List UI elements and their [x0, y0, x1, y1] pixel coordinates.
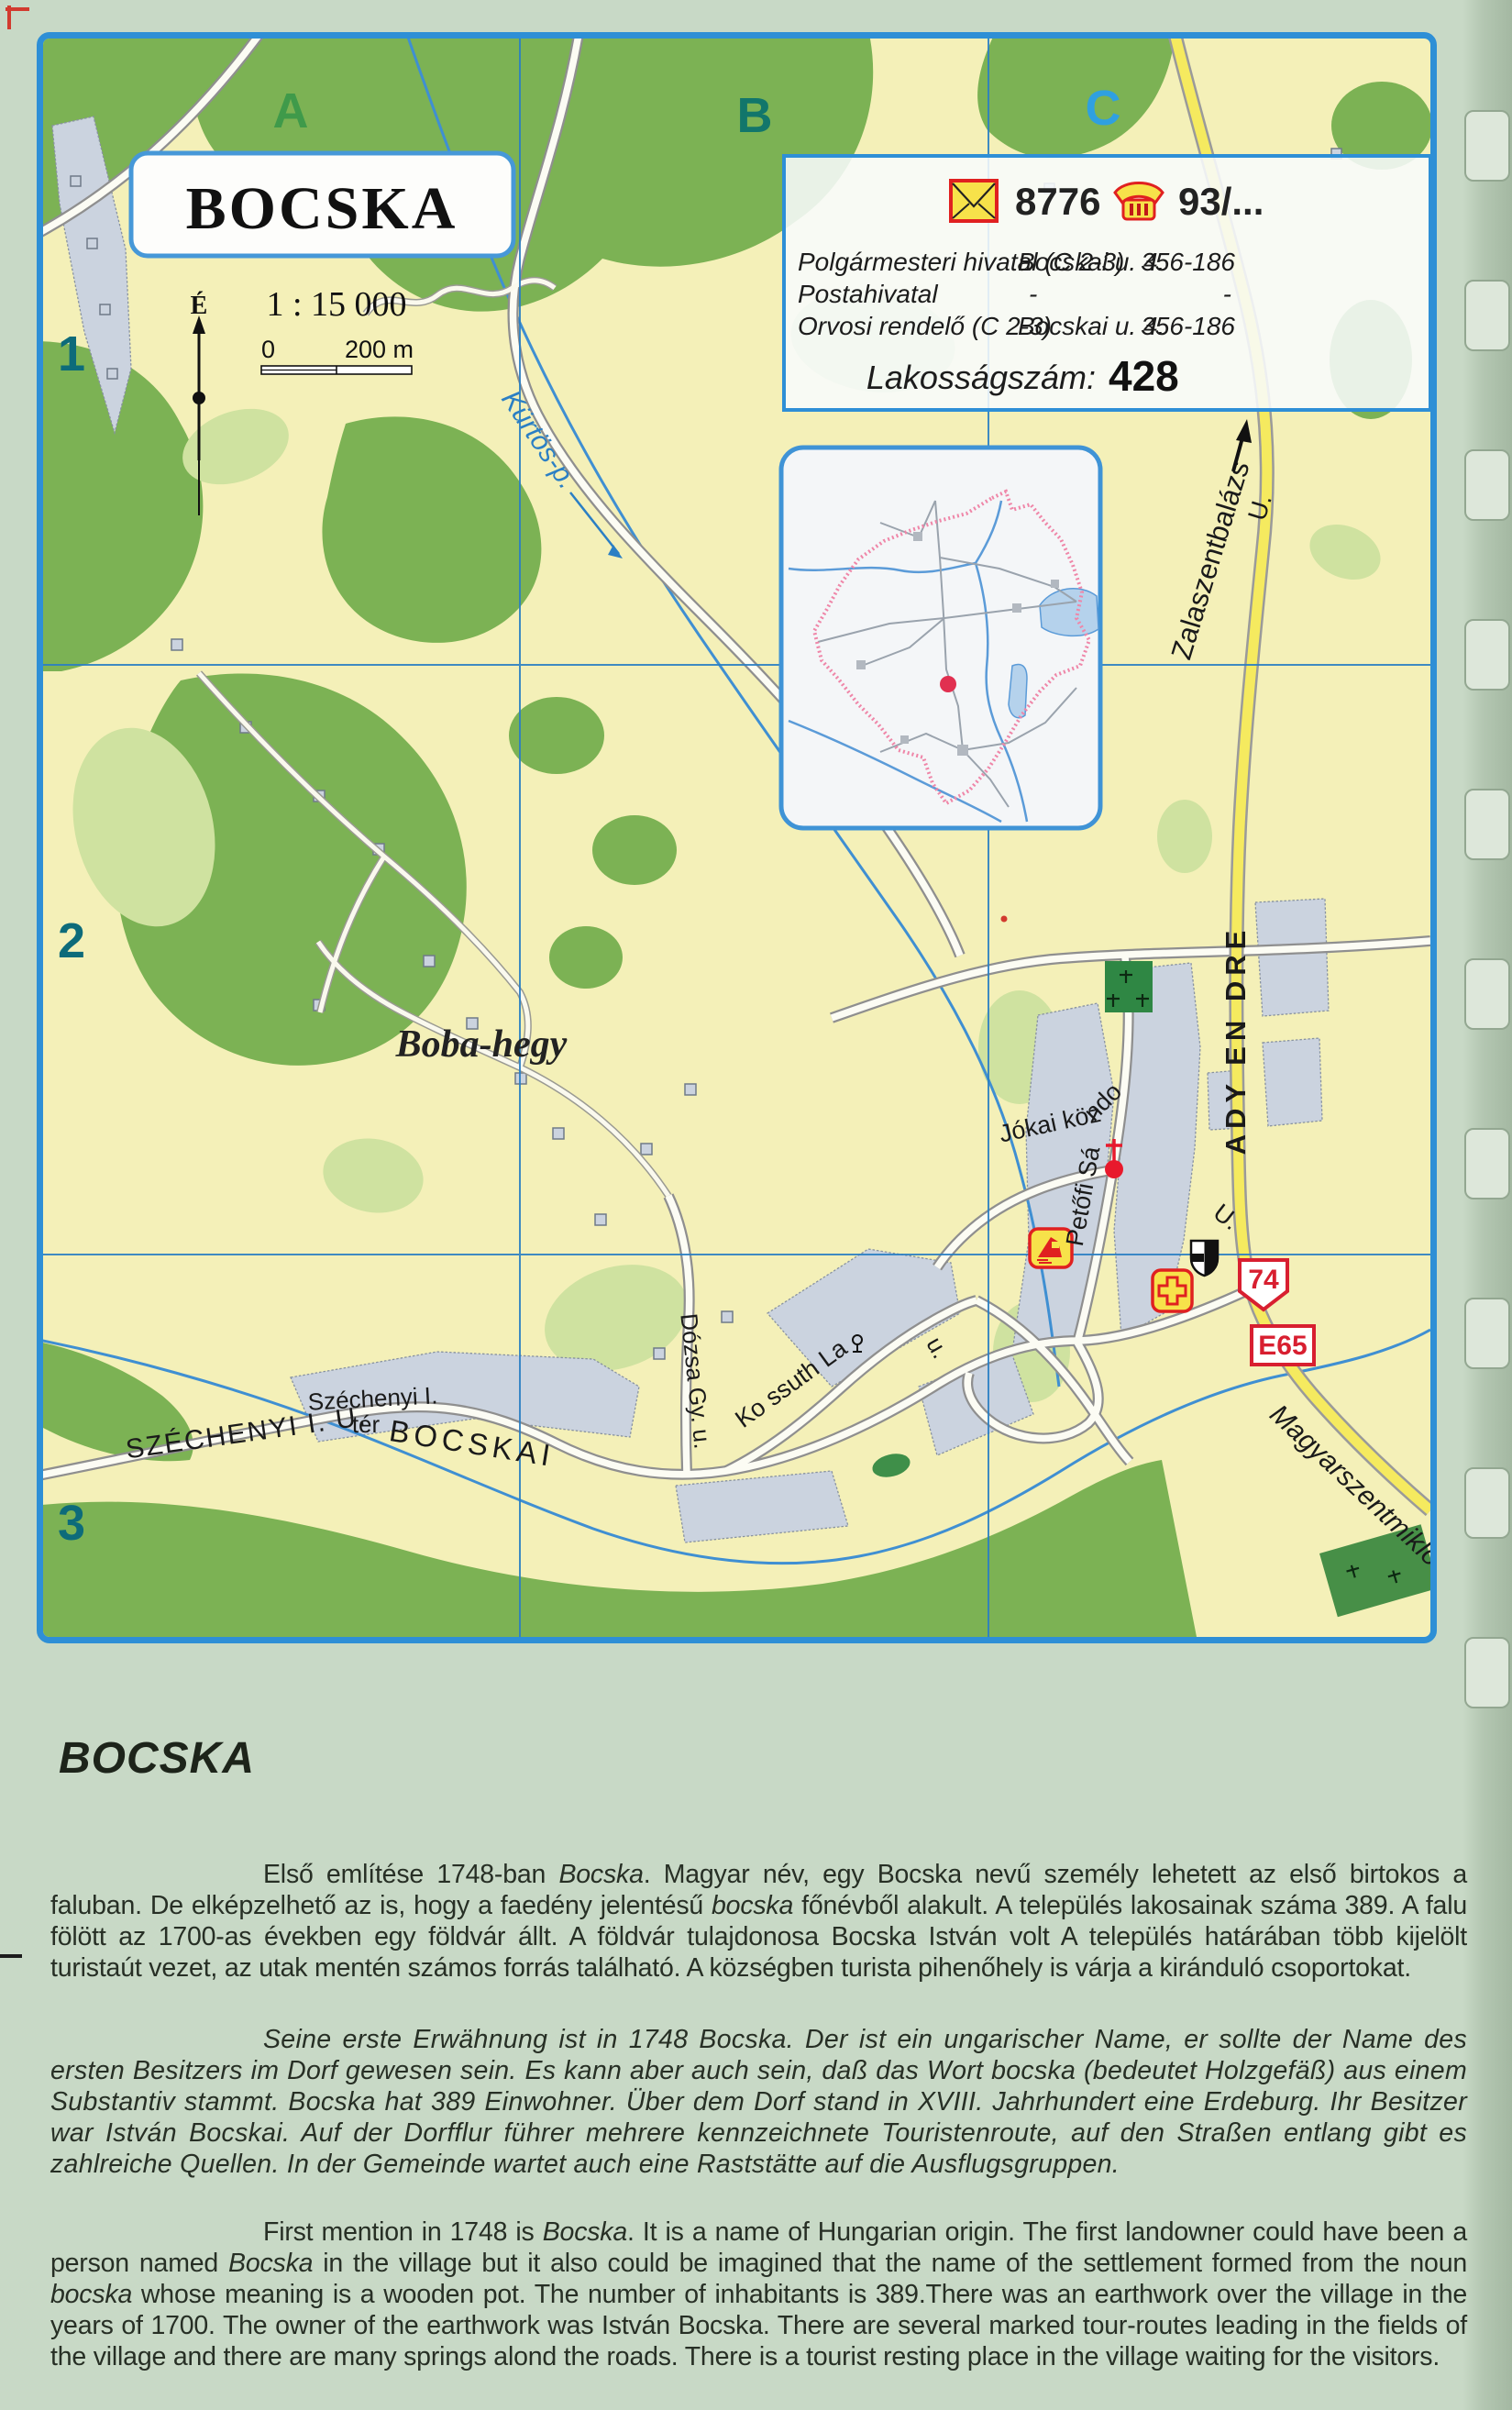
registration-mark	[7, 6, 11, 29]
direction-label: Zalaszentbalázs	[1164, 458, 1255, 663]
svg-text:B: B	[737, 88, 773, 143]
article-heading: BOCSKA	[59, 1733, 255, 1784]
svg-text:1: 1	[58, 326, 85, 381]
inset-village-dot	[940, 676, 956, 692]
population-label: Lakosságszám:	[866, 359, 1096, 396]
paragraph-english: First mention in 1748 is Bocska. It is a…	[50, 2217, 1467, 2372]
paragraph-german: Seine erste Erwähnung ist in 1748 Bocska…	[50, 2024, 1467, 2180]
map-title-box: BOCSKA	[131, 153, 513, 256]
street-label: u.	[921, 1332, 955, 1364]
info-row-phone: 356-186	[1141, 248, 1235, 276]
svg-text:2: 2	[58, 913, 85, 968]
village-map: 74 E65 Kürtös-p. Zalaszentbalázs U. ADY …	[37, 32, 1437, 1643]
population-value: 428	[1109, 352, 1179, 400]
inset-lake	[1009, 665, 1027, 718]
phone-icon	[1115, 183, 1163, 220]
info-box: 8776 93/... Polgármesteri hivatal (C 2-3…	[784, 156, 1430, 410]
cross-icon	[1153, 1270, 1192, 1311]
cemetery-icon	[1105, 961, 1153, 1012]
route-e65-sign: E65	[1252, 1326, 1314, 1365]
svg-text:0: 0	[261, 336, 275, 363]
poi-dot	[1001, 916, 1008, 923]
phone-prefix: 93/...	[1178, 180, 1264, 223]
info-row-phone: 356-186	[1141, 312, 1235, 340]
square-label: tér	[352, 1410, 381, 1438]
route-74-shield: 74	[1240, 1260, 1287, 1310]
svg-text:3: 3	[58, 1496, 85, 1551]
binding-edge	[1462, 0, 1512, 2410]
svg-text:200 m: 200 m	[345, 336, 414, 363]
info-row-name: Orvosi rendelő (C 2-3)	[798, 312, 1052, 340]
envelope-icon	[951, 181, 997, 221]
hill-label: Boba-hegy	[395, 1023, 568, 1066]
inset-map	[781, 448, 1100, 828]
info-row-phone: -	[1223, 280, 1231, 308]
map-svg: 74 E65 Kürtös-p. Zalaszentbalázs U. ADY …	[43, 39, 1430, 1637]
atlas-page: { "page": { "background": "#c8d9c6", "ac…	[0, 0, 1512, 2410]
svg-text:E65: E65	[1258, 1331, 1307, 1361]
margin-tick	[0, 1954, 22, 1958]
info-row-name: Postahivatal	[798, 280, 938, 308]
scale-bar: 1 : 15 000 0 200 m	[261, 285, 414, 374]
svg-text:C: C	[1086, 81, 1121, 136]
svg-text:1 : 15 000: 1 : 15 000	[266, 285, 406, 324]
svg-text:A: A	[273, 83, 309, 138]
map-title: BOCSKA	[186, 175, 458, 242]
postal-code: 8776	[1015, 180, 1100, 223]
paragraph-hungarian: Első említése 1748-ban Bocska. Magyar né…	[50, 1859, 1467, 1984]
svg-text:74: 74	[1248, 1265, 1279, 1295]
street-label: ADY EN DRE	[1220, 925, 1252, 1155]
shield-icon	[1191, 1241, 1218, 1276]
info-row-address: -	[1029, 280, 1037, 308]
